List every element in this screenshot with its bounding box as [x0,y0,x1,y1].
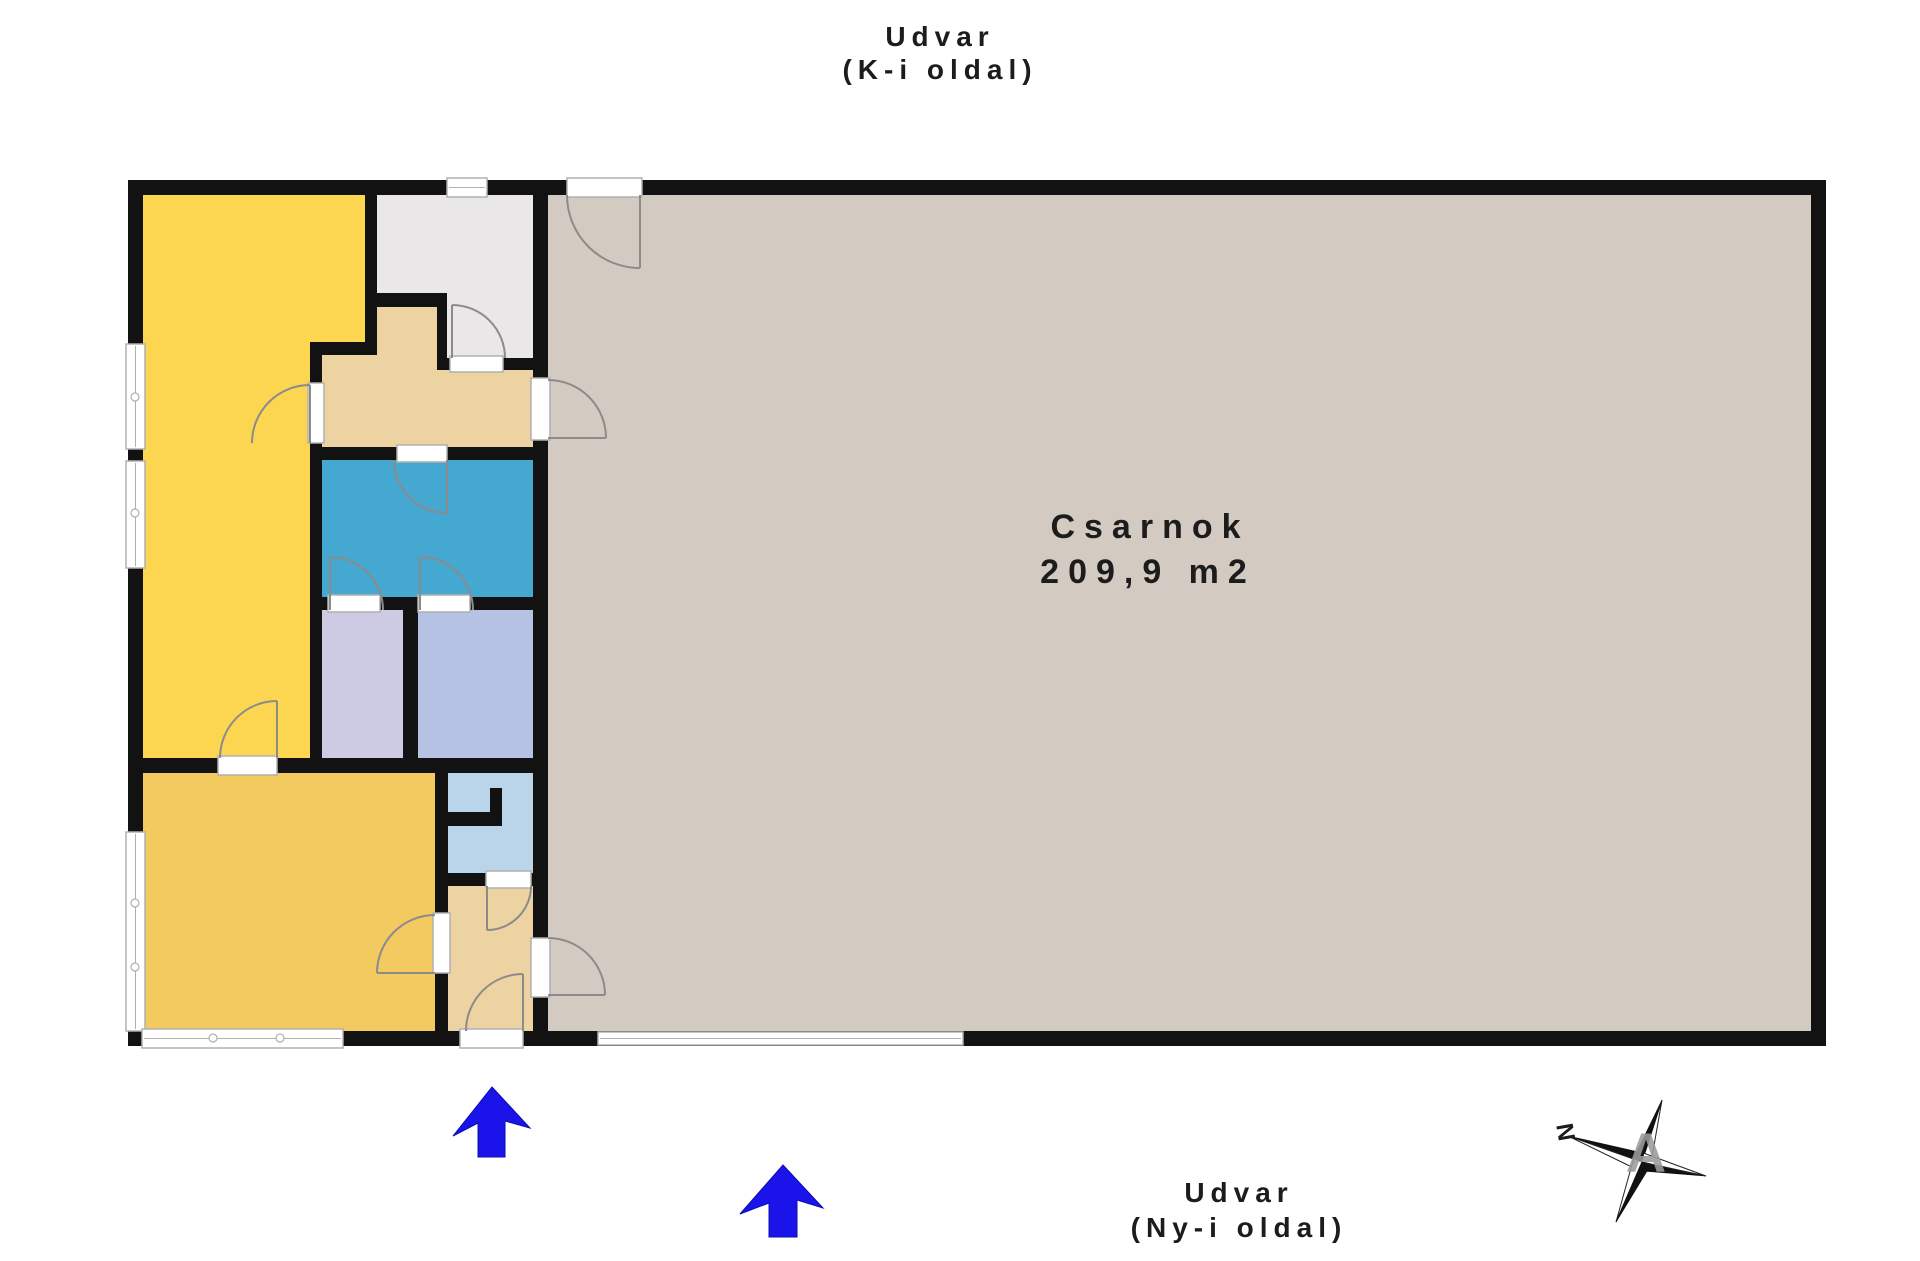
compass-north-label: N [1552,1121,1582,1143]
wall-segment [365,293,447,307]
wall-outer-top [128,180,1826,195]
door-opening [567,178,642,197]
courtyard-bottom-label-line2: (Ny-i oldal) [1131,1212,1348,1243]
room-bottom-left-yellow [143,773,435,1031]
hall-name-label: Csarnok [1050,508,1249,546]
window-mark [209,1034,217,1042]
wall-segment [437,307,447,370]
compass-rose-icon: A N [1552,1100,1706,1222]
courtyard-top-label-line1: Udvar [885,21,994,52]
door-opening [531,378,550,440]
wall-outer-right [1811,180,1826,1046]
wall-wc-partition [490,788,502,826]
window-mark [276,1034,284,1042]
door-opening [328,595,380,612]
compass-watermark-letter: A [1626,1121,1666,1184]
wall-segment [365,180,377,342]
room-periwinkle [418,610,533,758]
window-mark [131,393,139,401]
floorplan-drawing: Udvar (K-i oldal) Csarnok 209,9 m2 Udvar… [0,0,1920,1261]
window-mark [131,899,139,907]
door-opening [218,756,277,775]
room-hall [548,195,1811,1031]
room-small-tan [448,886,533,1031]
window-mark [131,963,139,971]
courtyard-top-label-line2: (K-i oldal) [842,54,1037,85]
room-blue [322,460,533,597]
window-mark [131,509,139,517]
door-opening [486,871,531,888]
door-opening [460,1029,523,1048]
wall-segment [403,610,418,758]
entrance-arrow-icon [740,1165,823,1237]
door-opening [531,938,550,997]
wall-main-vertical [533,180,548,1046]
door-opening [433,913,450,973]
door-opening [397,445,447,462]
door-opening [418,595,470,612]
wall-segment [435,773,448,1031]
entrance-arrows [453,1087,823,1237]
room-lavender [322,610,403,758]
door-opening [450,356,503,372]
wall-outer-bottom [128,1031,1826,1046]
hall-area-label: 209,9 m2 [1040,553,1256,591]
wall-segment [128,758,533,773]
courtyard-bottom-label-line1: Udvar [1184,1177,1293,1208]
rooms [143,195,1811,1031]
floorplan-page: Udvar (K-i oldal) Csarnok 209,9 m2 Udvar… [0,0,1920,1261]
entrance-arrow-icon [453,1087,530,1157]
